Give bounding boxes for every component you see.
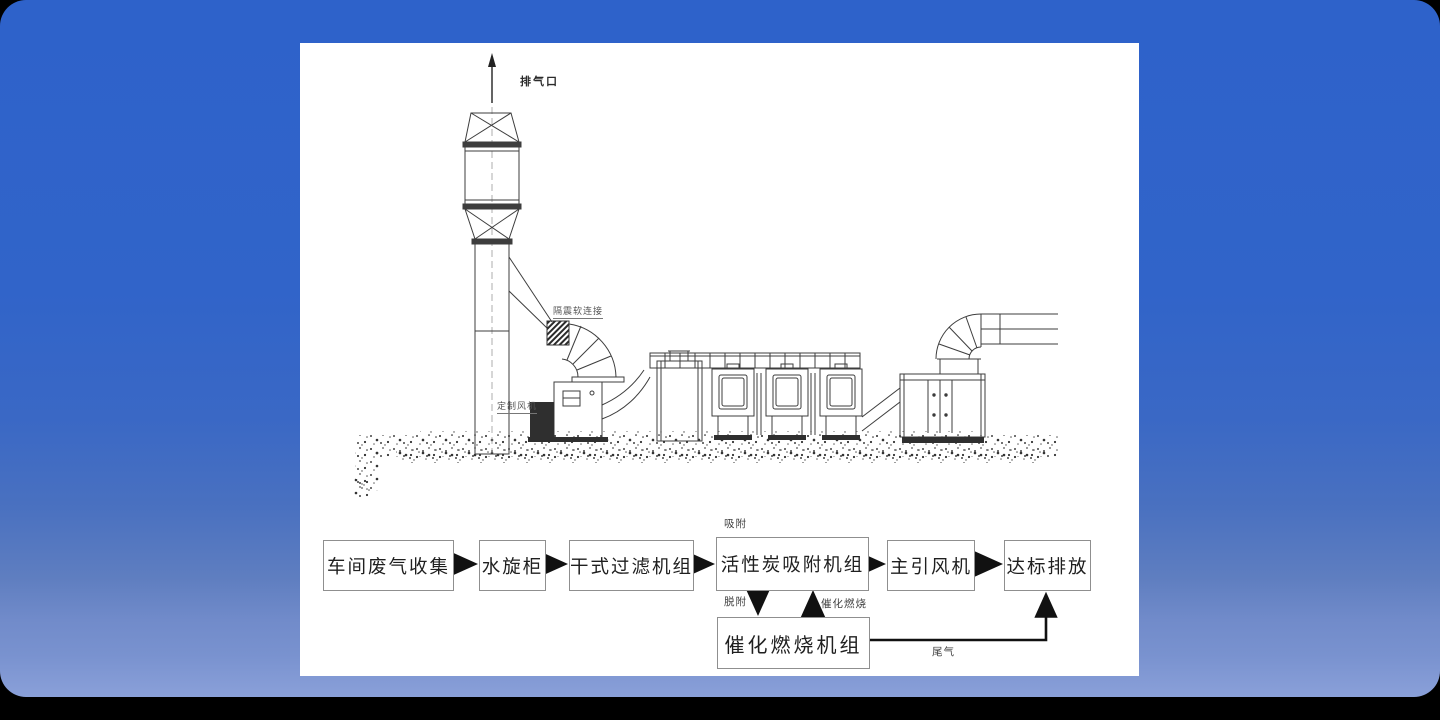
flow-box-compliant-discharge: 达标排放 [1004, 540, 1091, 591]
adsorption-edge-label: 吸附 [724, 516, 747, 531]
flow-box-workshop-gas-collection: 车间废气收集 [323, 540, 454, 591]
tail-gas-edge-label: 尾气 [932, 644, 955, 659]
flow-box-main-induced-draft-fan: 主引风机 [887, 540, 975, 591]
diagram-panel: 排气口 隔震软连接 定制风机 车间废气收集 水旋柜 干式过滤机组 活性炭吸附机组… [300, 43, 1139, 676]
exhaust-outlet-label: 排气口 [520, 73, 559, 89]
custom-fan-label: 定制风机 [497, 399, 537, 414]
flow-box-water-spin-cabinet: 水旋柜 [479, 540, 546, 591]
flow-box-dry-filter-unit: 干式过滤机组 [569, 540, 694, 591]
desorption-edge-label: 脱附 [724, 594, 747, 609]
flow-box-activated-carbon-adsorption-unit: 活性炭吸附机组 [716, 537, 869, 591]
soft-connection-label: 隔震软连接 [553, 304, 603, 319]
catalytic-combustion-edge-label: 催化燃烧 [821, 596, 867, 611]
flow-box-catalytic-combustion-unit: 催化燃烧机组 [717, 617, 870, 669]
